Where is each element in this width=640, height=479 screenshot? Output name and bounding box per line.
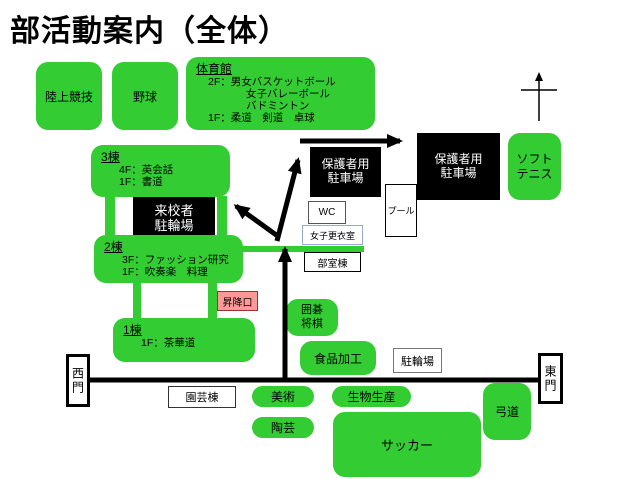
- facility-parent-parking-1: 保護者用 駐車場: [310, 147, 381, 197]
- art-label: 美術: [271, 388, 295, 405]
- gym-line-1f: 1F：柔道 剣道 卓球: [196, 113, 369, 125]
- soccer-label: サッカー: [381, 435, 433, 454]
- building2-title: 2棟: [104, 238, 237, 255]
- facility-west-gate: 西門: [66, 354, 90, 407]
- facility-pool: プール: [385, 184, 417, 237]
- visitor-bicycle-line1: 来校者: [154, 204, 193, 219]
- building3-title: 3棟: [101, 148, 224, 165]
- arrow-to-parent-parking: [277, 160, 298, 241]
- igo-shogi-line2: 将棋: [301, 318, 323, 331]
- area-soft-tennis: ソフト テニス: [508, 133, 561, 200]
- gardening-label: 園芸棟: [186, 389, 219, 405]
- connector-bldg3-bldg2-right: [217, 196, 227, 237]
- bicycle-parking-label: 駐輪場: [401, 353, 434, 369]
- east-gate-label: 東門: [542, 365, 559, 393]
- area-building1: 1棟 1F：茶華道: [113, 318, 255, 362]
- building2-line-1f: 1F：吹奏楽 料理: [104, 267, 237, 279]
- area-kyudo: 弓道: [483, 383, 531, 440]
- page-title: 部活動案内（全体）: [10, 6, 289, 50]
- area-bio-production: 生物生産: [332, 386, 411, 407]
- area-baseball-label: 野球: [133, 88, 157, 105]
- facility-visitor-bicycle-parking: 来校者 駐輪場: [133, 197, 215, 240]
- area-soccer: サッカー: [333, 412, 481, 477]
- pool-label: プール: [387, 204, 414, 217]
- parent-parking2-line2: 駐車場: [440, 167, 476, 181]
- area-food-processing: 食品加工: [300, 341, 376, 375]
- facility-east-gate: 東門: [538, 353, 563, 404]
- building1-line-1f: 1F：茶華道: [123, 338, 249, 350]
- parent-parking1-line1: 保護者用: [321, 158, 369, 172]
- area-building3: 3棟 4F：英会話 1F：書道: [91, 145, 230, 197]
- igo-shogi-line1: 囲碁: [301, 304, 323, 317]
- wc-label: WC: [319, 207, 336, 218]
- connector-bldg2-bldg1-right: [208, 282, 217, 319]
- building3-line-1f: 1F：書道: [101, 177, 224, 189]
- soft-tennis-line1: ソフト: [516, 152, 552, 166]
- pottery-label: 陶芸: [271, 419, 295, 436]
- connector-bldg2-bldg1-left: [133, 282, 141, 319]
- girls-locker-label: 女子更衣室: [310, 229, 355, 242]
- arrow-to-visitor-bicycle-parking: [236, 206, 279, 237]
- club-room-label: 部室棟: [318, 255, 348, 270]
- food-processing-label: 食品加工: [314, 350, 362, 367]
- area-art: 美術: [252, 386, 314, 407]
- facility-parent-parking-2: 保護者用 駐車場: [417, 133, 500, 200]
- parent-parking2-line1: 保護者用: [434, 153, 482, 167]
- soft-tennis-line2: テニス: [516, 167, 552, 181]
- west-gate-label: 西門: [70, 367, 87, 395]
- north-arrow-icon: [521, 74, 557, 121]
- facility-wc: WC: [308, 201, 346, 224]
- facility-bicycle-parking: 駐輪場: [393, 348, 442, 373]
- area-pottery: 陶芸: [252, 417, 314, 438]
- entrance-label: 昇降口: [223, 294, 253, 309]
- visitor-bicycle-line2: 駐輪場: [154, 219, 193, 234]
- club-activities-map: 部活動案内（全体） 陸上競技 野球 体育館 2F：男女バスケットボール 女子バレ…: [0, 0, 640, 479]
- parent-parking1-line2: 駐車場: [327, 172, 363, 186]
- connector-bldg3-bldg2-left: [105, 196, 115, 237]
- area-building2: 2棟 3F：ファッション研究 1F：吹奏楽 料理: [94, 235, 243, 283]
- building1-title: 1棟: [123, 321, 249, 338]
- bio-production-label: 生物生産: [347, 388, 395, 405]
- area-track-field-label: 陸上競技: [45, 88, 93, 105]
- area-gymnasium: 体育館 2F：男女バスケットボール 女子バレーボール バドミントン 1F：柔道 …: [186, 57, 375, 130]
- facility-girls-locker: 女子更衣室: [302, 225, 363, 245]
- facility-club-room-building: 部室棟: [304, 252, 361, 272]
- facility-gardening-building: 園芸棟: [168, 386, 236, 408]
- area-baseball: 野球: [112, 62, 178, 130]
- kyudo-label: 弓道: [495, 403, 519, 420]
- area-igo-shogi: 囲碁 将棋: [286, 299, 338, 336]
- gym-title: 体育館: [196, 60, 369, 77]
- area-track-field: 陸上競技: [36, 62, 102, 130]
- facility-entrance: 昇降口: [217, 291, 258, 311]
